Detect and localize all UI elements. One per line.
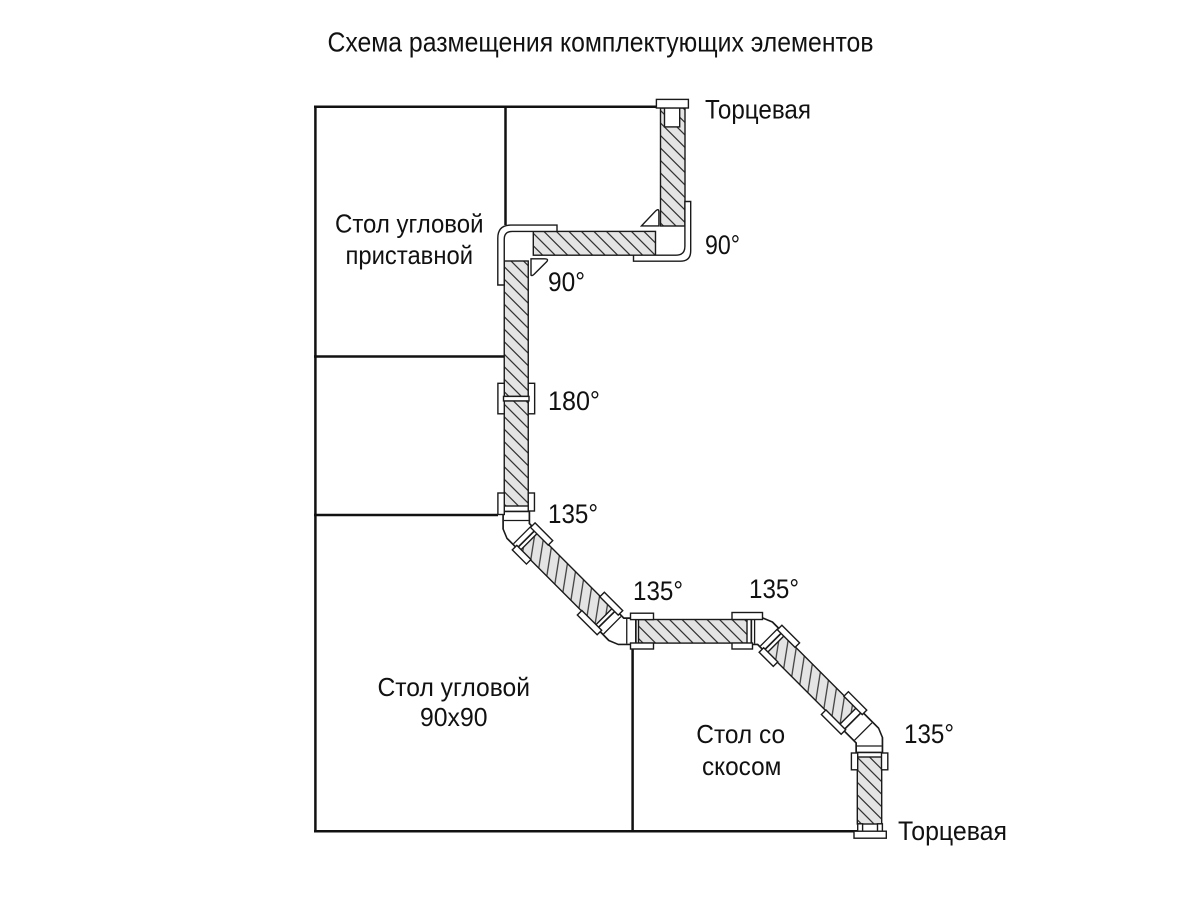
svg-text:Схема размещения комплектующих: Схема размещения комплектующих элементов xyxy=(328,27,874,58)
svg-text:135°: 135° xyxy=(548,499,598,529)
svg-text:приставной: приставной xyxy=(346,240,474,270)
svg-text:90х90: 90х90 xyxy=(420,702,488,732)
svg-text:Стол угловой: Стол угловой xyxy=(335,209,484,239)
svg-text:Торцевая: Торцевая xyxy=(898,816,1007,846)
svg-text:Стол со: Стол со xyxy=(696,719,785,749)
svg-text:135°: 135° xyxy=(633,576,683,606)
svg-text:90°: 90° xyxy=(548,267,585,297)
svg-text:135°: 135° xyxy=(904,719,954,749)
svg-text:Торцевая: Торцевая xyxy=(705,95,811,125)
svg-text:Стол угловой: Стол угловой xyxy=(378,672,531,702)
svg-text:135°: 135° xyxy=(749,574,799,604)
svg-text:180°: 180° xyxy=(548,386,600,416)
svg-text:скосом: скосом xyxy=(702,751,781,781)
svg-text:90°: 90° xyxy=(705,230,740,260)
